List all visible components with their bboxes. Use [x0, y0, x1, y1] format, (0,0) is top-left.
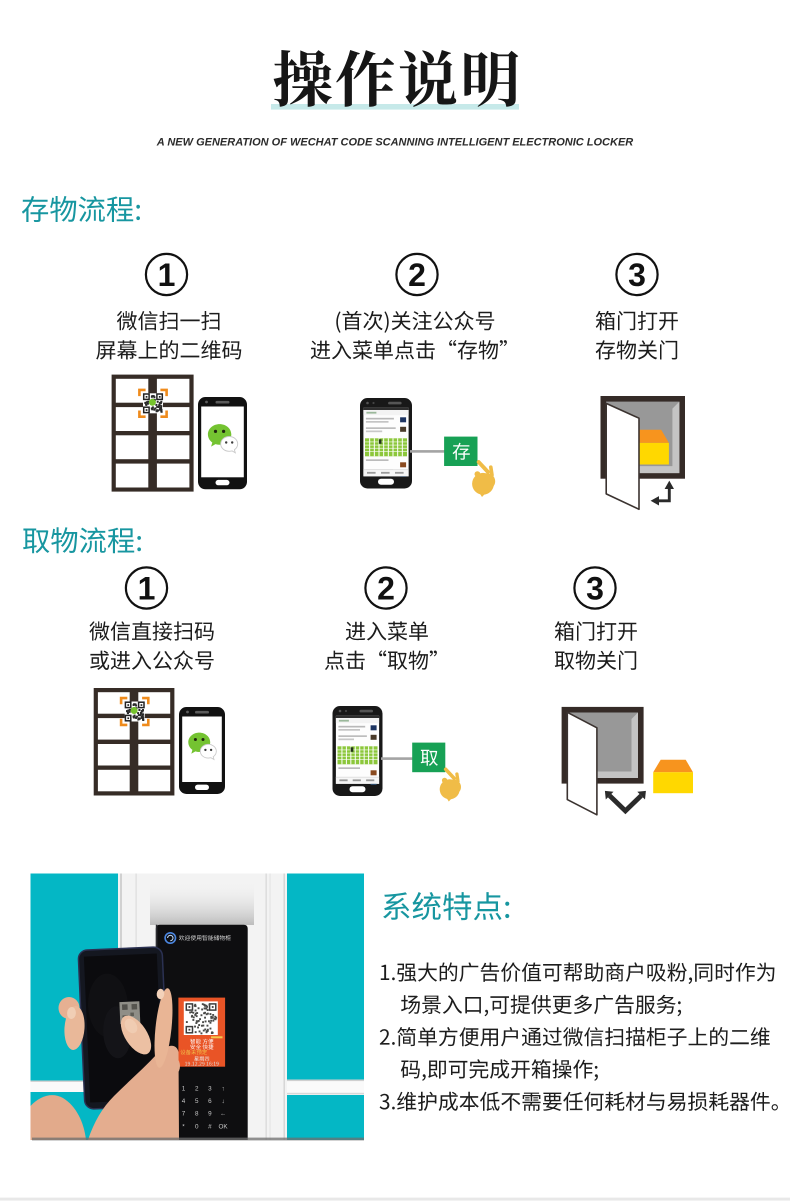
svg-text:0: 0 — [195, 1123, 199, 1130]
svg-text:2: 2 — [195, 1086, 199, 1093]
svg-text:←: ← — [220, 1111, 226, 1118]
svg-text:1: 1 — [138, 571, 156, 607]
svg-text:3: 3 — [586, 571, 604, 607]
svg-text:9: 9 — [208, 1111, 212, 1118]
svg-text:3: 3 — [208, 1086, 212, 1093]
svg-text:4: 4 — [182, 1098, 186, 1105]
svg-text:8: 8 — [195, 1111, 199, 1118]
svg-text:7: 7 — [182, 1111, 186, 1118]
svg-text:1: 1 — [158, 257, 176, 293]
svg-text:6: 6 — [208, 1098, 212, 1105]
svg-text:#: # — [208, 1123, 212, 1130]
svg-text:A NEW GENERATION OF WECHAT COD: A NEW GENERATION OF WECHAT CODE SCANNING… — [156, 137, 634, 149]
svg-text:2: 2 — [377, 571, 395, 607]
svg-text:5: 5 — [195, 1098, 199, 1105]
svg-text:1: 1 — [182, 1086, 186, 1093]
svg-text:3: 3 — [628, 257, 646, 293]
svg-text:OK: OK — [219, 1123, 229, 1130]
svg-text:↑: ↑ — [222, 1086, 225, 1093]
svg-text:2: 2 — [408, 257, 426, 293]
svg-text:↓: ↓ — [222, 1098, 225, 1105]
